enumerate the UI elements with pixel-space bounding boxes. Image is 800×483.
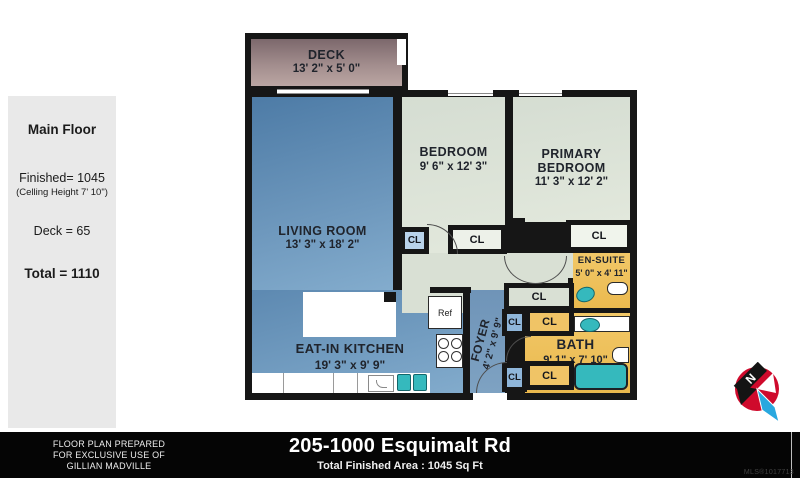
closet-label: CL (542, 370, 557, 382)
bedroom-label: BEDROOM (419, 145, 487, 159)
kitchen-sink (413, 374, 427, 391)
room-primary-bedroom: PRIMARY BEDROOM 11' 3" x 12' 2" (513, 97, 630, 222)
closet-label: CL (408, 235, 421, 246)
bedroom-window (448, 90, 493, 96)
closet-hall: CL (504, 283, 574, 311)
primary-window (519, 90, 562, 96)
address-title: 205-1000 Esquimalt Rd (0, 435, 800, 458)
faucet-icon (376, 380, 387, 388)
closet-label: CL (508, 372, 521, 383)
north-compass: N (729, 362, 787, 426)
bath-sink (580, 318, 600, 332)
footer-bar: FLOOR PLAN PREPARED FOR EXCLUSIVE USE OF… (0, 432, 800, 478)
dishwasher (368, 375, 394, 392)
fridge-label: Ref (438, 308, 452, 318)
burner (451, 338, 462, 349)
counter-divider (283, 373, 284, 393)
floor-plan-page: { "sidebar": { "title": "Main Floor", "f… (0, 0, 800, 483)
ensuite-dims: 5' 0" x 4' 11" (575, 268, 627, 279)
ensuite-toilet (607, 282, 628, 295)
living-dims: 13' 3" x 18' 2" (286, 239, 360, 253)
kitchen-text: EAT-IN KITCHEN 19' 3" x 9' 9" (255, 338, 445, 376)
total-finished-area: Total Finished Area : 1045 Sq Ft (0, 460, 800, 472)
closet-bath-top: CL (525, 308, 574, 336)
wall-segment (463, 290, 470, 375)
closet-label: CL (508, 317, 521, 328)
burner (438, 338, 449, 349)
bath-tub (574, 363, 628, 390)
closet-label: CL (592, 230, 607, 242)
primary-label: PRIMARY BEDROOM (526, 147, 618, 176)
deck-dims: 13' 2" x 5' 0" (293, 63, 361, 77)
floor-plan: DECK 13' 2" x 5' 0" LIVING ROOM 13' 3" x… (0, 0, 800, 432)
counter-divider (333, 373, 334, 393)
bath-toilet (612, 347, 629, 363)
stove-burners (438, 338, 462, 362)
deck-sliding-door (277, 89, 369, 94)
wall-segment (573, 308, 630, 313)
deck-label: DECK (308, 48, 345, 62)
wall-segment (430, 287, 471, 293)
mls-number: MLS®1017713 (744, 469, 794, 476)
kitchen-island (303, 292, 396, 337)
room-living: LIVING ROOM 13' 3" x 18' 2" (252, 97, 393, 290)
closet-primary: CL (566, 220, 632, 252)
closet-label: CL (470, 234, 485, 246)
deck-opening (397, 39, 406, 65)
counter-divider (357, 373, 358, 393)
fridge: Ref (428, 296, 462, 329)
burner (438, 351, 449, 362)
island-corner (384, 292, 396, 302)
closet-label: CL (542, 316, 557, 328)
closet-foyer-top: CL (502, 309, 527, 336)
burner (451, 351, 462, 362)
kitchen-dims: 19' 3" x 9' 9" (315, 358, 385, 372)
kitchen-sink (397, 374, 411, 391)
primary-dims: 11' 3" x 12' 2" (535, 176, 608, 190)
bedroom-dims: 9' 6" x 12' 3" (420, 161, 488, 175)
closet-bedroom-blue: CL (400, 227, 429, 254)
closet-bath-bottom: CL (525, 361, 574, 390)
bath-label: BATH (556, 337, 594, 353)
living-label: LIVING ROOM (278, 224, 366, 238)
entry-opening (473, 393, 507, 400)
closet-label: CL (532, 291, 547, 303)
ensuite-label: EN-SUITE (578, 256, 626, 267)
wall-segment (513, 218, 525, 223)
room-deck: DECK 13' 2" x 5' 0" (245, 33, 408, 92)
kitchen-label: EAT-IN KITCHEN (296, 342, 405, 357)
footer-center: 205-1000 Esquimalt Rd Total Finished Are… (0, 435, 800, 472)
